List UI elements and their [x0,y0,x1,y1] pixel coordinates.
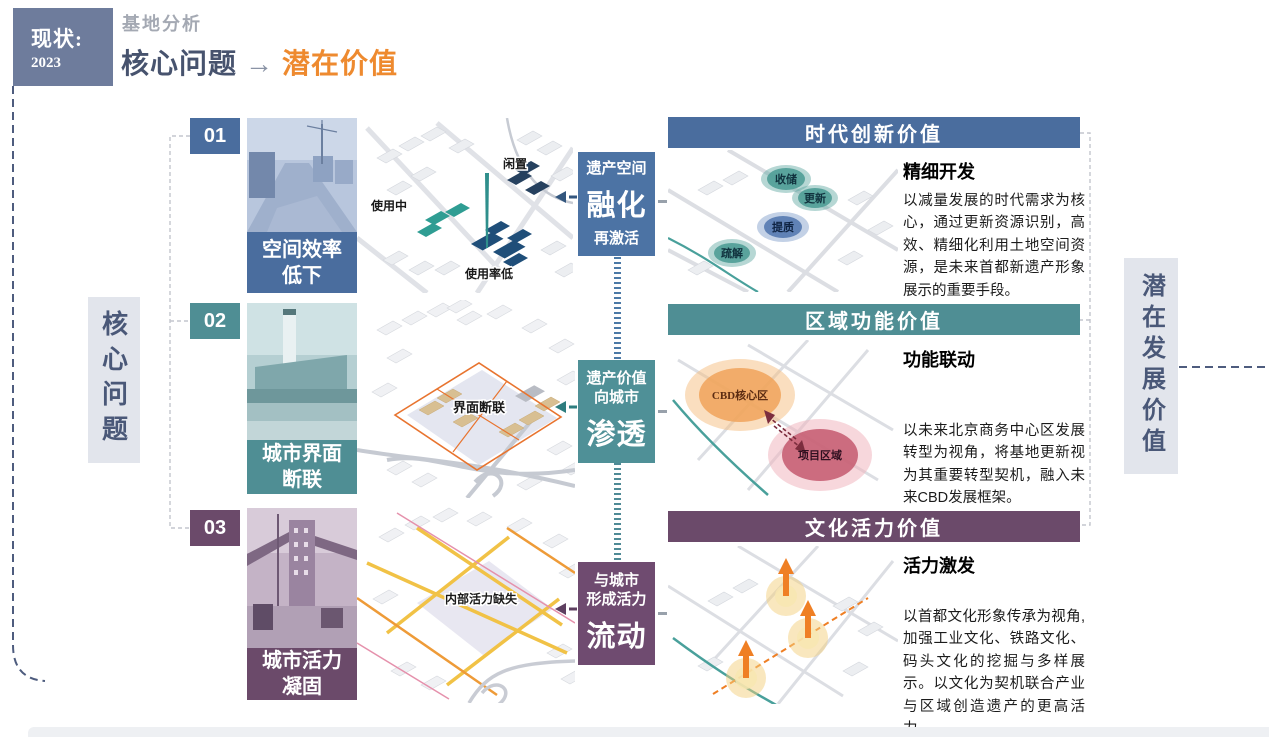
left-axis-label: 核心问题 [88,297,140,463]
status-tag-line1: 现状: [31,23,113,53]
row1-value-title-bar: 时代创新价值 [668,117,1080,148]
footer-bar [28,727,1269,737]
row1-photo-card: 空间效率 低下 [247,118,357,293]
row2-value-body: 以未来北京商务中心区发展转型为视角，将基地更新视为其重要转型契机，融入未来CBD… [903,420,1085,510]
row1-axon-label-inuse: 使用中 [370,198,407,213]
row2-problem-label: 城市界面 断联 [247,440,357,494]
bubble-gengxin: 更新 [804,191,826,205]
row1-value-illustration: 收储 更新 提质 疏解 [668,150,898,292]
row3-value-subtitle: 活力激发 [903,552,975,578]
section-kicker: 基地分析 [122,10,202,36]
row1-axon-label-idle: 闲置 [503,157,527,171]
row3-site-photo [247,508,357,648]
row2-photo-card: 城市界面 断联 [247,303,357,494]
arrow-right-icon: → [245,48,274,79]
row1-site-photo [247,118,357,232]
bubble-shujie: 疏解 [721,246,743,260]
status-tag: 现状: 2023 [13,8,113,86]
map-label-project: 项目区域 [798,448,842,462]
row1-axon-label-lowuse: 使用率低 [464,266,513,281]
bubble-tizhi: 提质 [772,220,794,234]
row1-axon-map: 使用中 闲置 使用率低 [357,118,573,293]
map-label-cbd: CBD核心区 [712,388,768,402]
bubble-shouchu: 收储 [775,172,797,186]
row2-value-illustration: CBD核心区 项目区域 [668,340,898,496]
row3-problem-label: 城市活力 凝固 [247,648,357,700]
slide-canvas: 现状: 2023 基地分析 核心问题→潜在价值 核心问题 潜在发展价值 01 空… [0,0,1269,737]
right-axis-label: 潜在发展价值 [1124,258,1178,474]
row2-number-badge: 02 [190,303,240,339]
page-title: 核心问题→潜在价值 [121,42,398,82]
row3-axon-map: 内部活力缺失 [357,503,575,703]
row2-arrow-left-icon [554,400,578,414]
row1-number-badge: 01 [190,118,240,154]
row1-problem-label: 空间效率 低下 [247,232,357,293]
rail-connector-1 [614,257,621,360]
rail-connector-2 [614,463,621,562]
row1-value-body: 以减量发展的时代需求为核心，通过更新资源识别，高效、精细化利用土地空间资源，是未… [903,190,1085,302]
row3-number-badge: 03 [190,510,240,546]
row3-arrow-left-icon [554,602,578,616]
row2-site-photo [247,303,357,440]
row2-axon-map: 界面断联 [357,300,575,498]
row2-value-subtitle: 功能联动 [903,346,975,372]
row3-dash-connector [658,612,667,615]
row3-photo-card: 城市活力 凝固 [247,508,357,700]
row1-arrow-left-icon [554,190,578,204]
row3-value-illustration [668,546,898,704]
row2-value-title-bar: 区域功能价值 [668,304,1080,335]
row3-value-title-bar: 文化活力价值 [668,511,1080,542]
status-tag-year: 2023 [31,55,113,72]
title-problem: 核心问题 [121,48,237,79]
row3-transform-box: 与城市 形成活力 流动 [578,562,655,665]
row1-transform-box: 遗产空间 融化 再激活 [578,152,655,256]
row3-value-body: 以首都文化形象传承为视角,加强工业文化、铁路文化、码头文化的挖掘与多样展示。以文… [903,606,1085,737]
row1-value-subtitle: 精细开发 [903,158,975,184]
row1-dash-connector [658,200,667,203]
row2-axon-label-disconnect: 界面断联 [453,400,505,415]
row2-transform-box: 遗产价值 向城市 渗透 [578,360,655,463]
row3-axon-label-lack: 内部活力缺失 [445,591,518,606]
title-value: 潜在价值 [282,48,398,79]
row2-dash-connector [658,410,667,413]
